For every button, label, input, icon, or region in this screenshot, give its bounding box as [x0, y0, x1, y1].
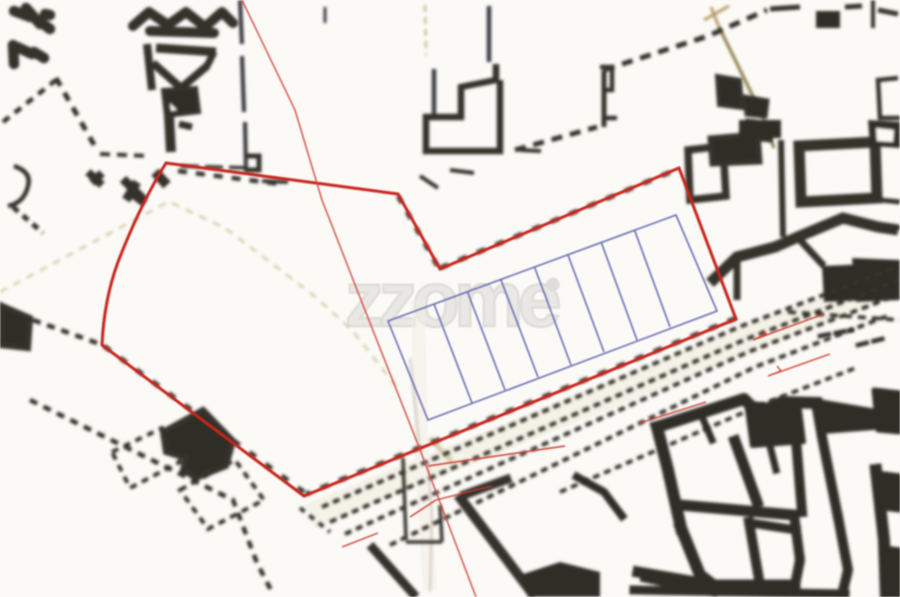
- svg-text:zzome: zzome: [345, 255, 559, 343]
- svg-text:®: ®: [547, 277, 559, 294]
